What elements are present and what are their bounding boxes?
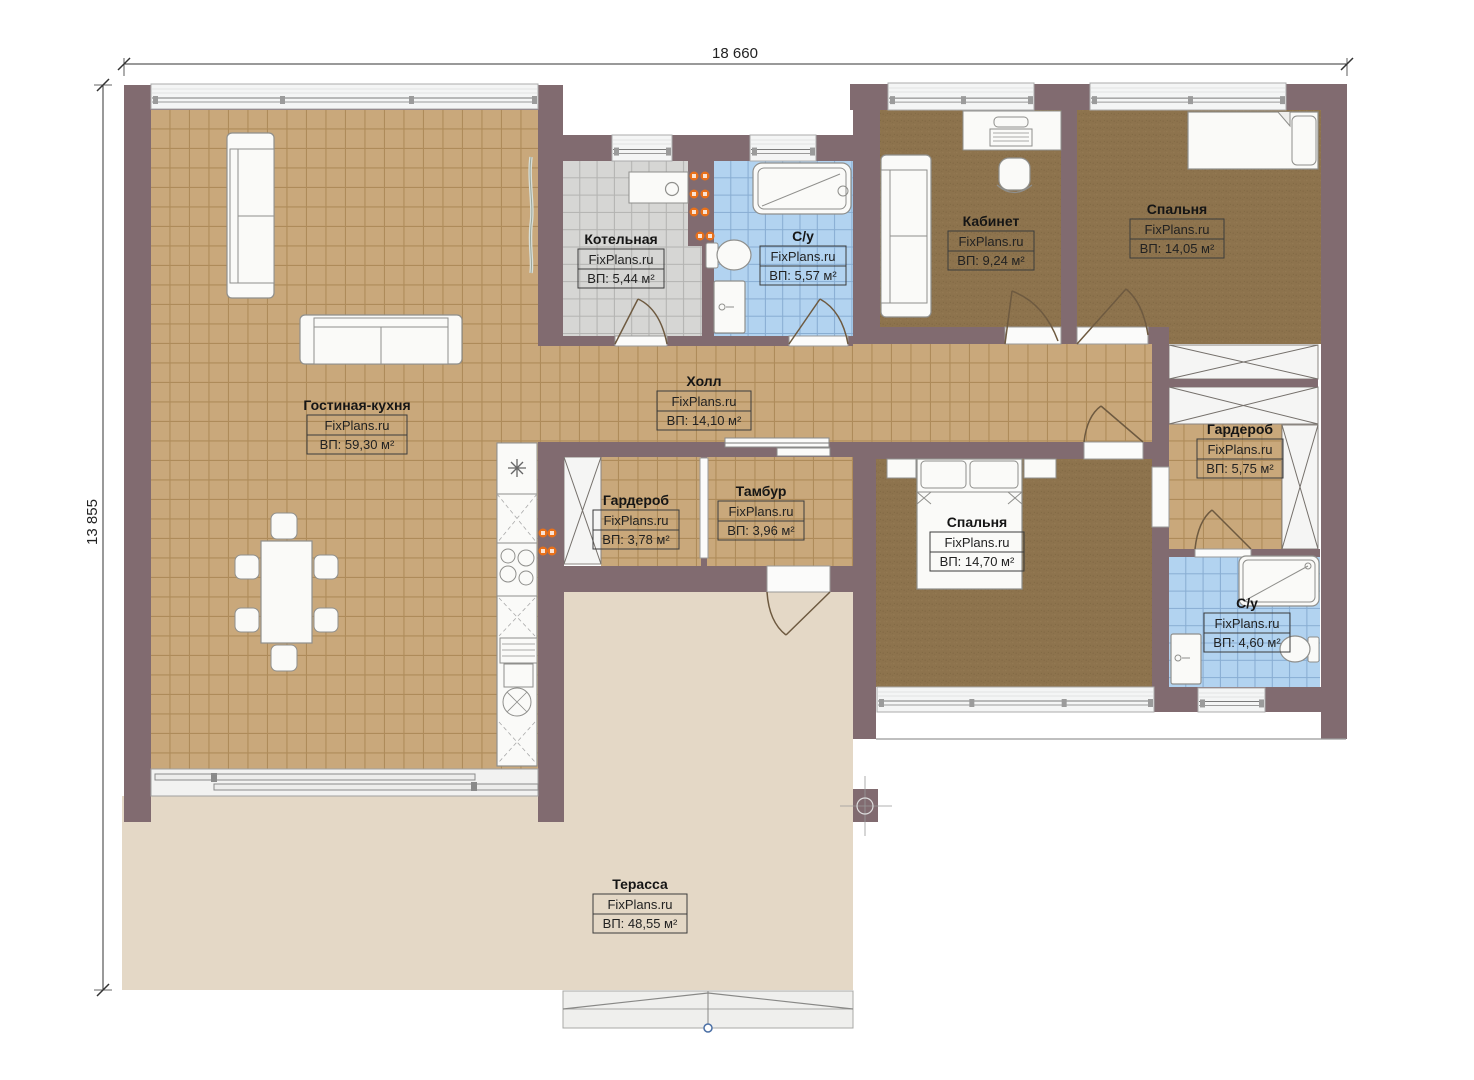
svg-text:FixPlans.ru: FixPlans.ru xyxy=(728,504,793,519)
svg-text:С/у: С/у xyxy=(792,228,814,244)
svg-text:FixPlans.ru: FixPlans.ru xyxy=(770,249,835,264)
svg-text:ВП: 5,44 м²: ВП: 5,44 м² xyxy=(587,271,655,286)
svg-text:С/у: С/у xyxy=(1236,595,1258,611)
svg-text:ВП: 48,55 м²: ВП: 48,55 м² xyxy=(603,916,678,931)
svg-text:ВП: 3,78 м²: ВП: 3,78 м² xyxy=(602,532,670,547)
svg-text:Терасса: Терасса xyxy=(612,876,668,892)
svg-text:FixPlans.ru: FixPlans.ru xyxy=(603,513,668,528)
svg-text:Гостиная-кухня: Гостиная-кухня xyxy=(303,397,410,413)
svg-text:FixPlans.ru: FixPlans.ru xyxy=(1214,616,1279,631)
svg-text:ВП: 14,10 м²: ВП: 14,10 м² xyxy=(667,413,742,428)
svg-text:Кабинет: Кабинет xyxy=(963,213,1020,229)
svg-text:Холл: Холл xyxy=(686,373,721,389)
svg-text:18 660: 18 660 xyxy=(712,45,758,62)
svg-text:ВП: 14,05 м²: ВП: 14,05 м² xyxy=(1140,241,1215,256)
svg-text:FixPlans.ru: FixPlans.ru xyxy=(588,252,653,267)
svg-text:FixPlans.ru: FixPlans.ru xyxy=(1207,442,1272,457)
svg-text:ВП: 9,24 м²: ВП: 9,24 м² xyxy=(957,253,1025,268)
svg-text:ВП: 4,60 м²: ВП: 4,60 м² xyxy=(1213,635,1281,650)
svg-text:ВП: 14,70 м²: ВП: 14,70 м² xyxy=(940,554,1015,569)
svg-text:Спальня: Спальня xyxy=(947,514,1007,530)
svg-text:FixPlans.ru: FixPlans.ru xyxy=(958,234,1023,249)
svg-text:Гардероб: Гардероб xyxy=(603,492,670,508)
svg-text:Спальня: Спальня xyxy=(1147,201,1207,217)
svg-text:ВП: 5,75 м²: ВП: 5,75 м² xyxy=(1206,461,1274,476)
svg-text:FixPlans.ru: FixPlans.ru xyxy=(324,418,389,433)
svg-text:Котельная: Котельная xyxy=(584,231,657,247)
svg-text:Тамбур: Тамбур xyxy=(736,483,787,499)
svg-text:13 855: 13 855 xyxy=(84,499,101,545)
svg-text:ВП: 5,57 м²: ВП: 5,57 м² xyxy=(769,268,837,283)
svg-text:ВП: 59,30 м²: ВП: 59,30 м² xyxy=(320,437,395,452)
svg-text:FixPlans.ru: FixPlans.ru xyxy=(1144,222,1209,237)
svg-text:FixPlans.ru: FixPlans.ru xyxy=(671,394,736,409)
svg-text:FixPlans.ru: FixPlans.ru xyxy=(944,535,1009,550)
svg-text:Гардероб: Гардероб xyxy=(1207,421,1274,437)
svg-text:FixPlans.ru: FixPlans.ru xyxy=(607,897,672,912)
svg-text:ВП: 3,96 м²: ВП: 3,96 м² xyxy=(727,523,795,538)
